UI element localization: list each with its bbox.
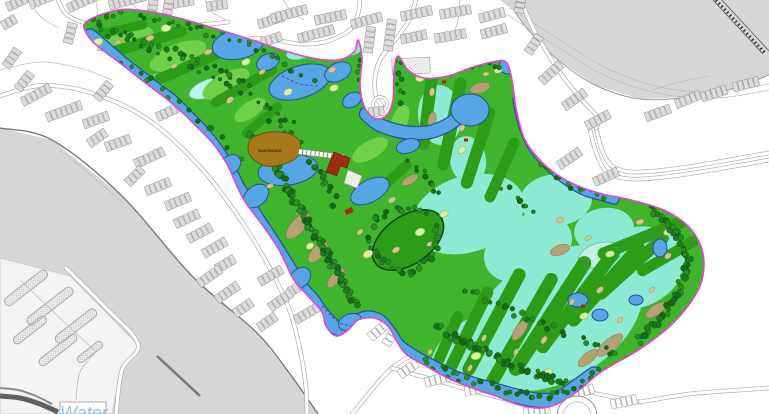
- tree: [157, 18, 161, 22]
- tree: [647, 151, 652, 156]
- tree: [189, 27, 193, 31]
- tree: [590, 370, 595, 375]
- tree: [147, 48, 152, 53]
- tree: [203, 33, 208, 38]
- tree: [323, 180, 328, 185]
- housing-unit: [366, 26, 376, 32]
- tree: [582, 335, 586, 339]
- tree: [164, 47, 168, 51]
- maintenance-shed: [328, 153, 332, 159]
- tree: [542, 157, 547, 162]
- tree: [204, 66, 209, 71]
- housing-row: [186, 223, 214, 244]
- tree: [658, 158, 663, 163]
- tree: [415, 169, 419, 173]
- housing-unit: [444, 8, 450, 18]
- tree: [496, 357, 502, 363]
- tree: [682, 252, 687, 257]
- tree: [436, 191, 440, 195]
- tree: [596, 367, 600, 371]
- tree: [106, 34, 111, 39]
- tree: [490, 382, 494, 386]
- housing-unit: [365, 31, 375, 37]
- tree: [443, 64, 448, 69]
- housing-row: [196, 265, 223, 288]
- tree: [537, 393, 543, 399]
- tree: [652, 321, 656, 325]
- housing-row: [206, 0, 228, 11]
- housing-unit: [148, 0, 158, 5]
- housing-row: [201, 237, 228, 258]
- tree: [402, 91, 406, 95]
- lake: [629, 295, 643, 305]
- tree: [96, 20, 101, 25]
- tree: [306, 159, 312, 165]
- housing-unit: [363, 47, 373, 53]
- tree: [530, 317, 535, 322]
- tree: [443, 366, 448, 371]
- tree: [330, 203, 336, 209]
- tree: [571, 386, 576, 391]
- tree: [464, 375, 469, 380]
- tree: [526, 114, 530, 118]
- tree: [651, 154, 656, 159]
- tree: [228, 38, 231, 41]
- tree: [417, 208, 422, 213]
- corridor-top-right: [500, 0, 769, 99]
- housing-row: [104, 134, 132, 152]
- housing-unit: [373, 107, 379, 117]
- tree: [386, 259, 391, 264]
- tree: [547, 396, 552, 401]
- housing-unit: [439, 9, 445, 19]
- tree: [279, 124, 283, 128]
- tree: [551, 373, 556, 378]
- housing-row: [314, 9, 347, 25]
- tree: [674, 230, 678, 234]
- tree: [412, 205, 417, 210]
- tree: [635, 334, 640, 339]
- tree: [644, 325, 650, 331]
- tree: [329, 251, 334, 256]
- tree: [550, 391, 555, 396]
- maintenance-shed: [323, 152, 327, 158]
- housing-unit: [164, 0, 174, 4]
- housing-unit: [385, 35, 395, 41]
- tree: [160, 87, 164, 91]
- tree: [324, 258, 329, 263]
- tree: [675, 293, 681, 299]
- housing-row: [556, 147, 583, 170]
- tree: [561, 381, 565, 385]
- tree: [656, 315, 663, 322]
- tree: [171, 20, 175, 24]
- tree: [656, 322, 661, 327]
- maintenance-label: MAINTENANCE: [258, 149, 282, 153]
- tree: [334, 193, 340, 199]
- housing-unit: [379, 106, 385, 116]
- maintenance-shed: [307, 150, 311, 156]
- tree: [682, 275, 689, 282]
- tree: [297, 208, 303, 214]
- tree: [238, 39, 242, 43]
- tree: [338, 276, 345, 283]
- housing-unit: [434, 33, 440, 43]
- tree: [493, 65, 498, 70]
- tree: [659, 160, 665, 166]
- tree: [372, 215, 378, 221]
- housing-row: [383, 19, 397, 52]
- tree: [499, 187, 503, 191]
- tree: [225, 145, 230, 150]
- tree: [673, 235, 679, 241]
- tree: [688, 256, 694, 262]
- housing-unit: [461, 29, 467, 39]
- tree: [429, 256, 435, 262]
- tree: [561, 389, 565, 393]
- housing-row: [363, 26, 376, 53]
- tree: [568, 186, 573, 191]
- housing-row: [28, 0, 56, 9]
- housing-unit: [365, 37, 375, 43]
- tree: [414, 165, 418, 169]
- tree: [524, 317, 530, 323]
- tree: [634, 354, 639, 359]
- tree: [283, 176, 289, 182]
- tree: [332, 259, 337, 264]
- housing-unit: [148, 5, 158, 11]
- housing-row: [232, 298, 254, 318]
- tree: [551, 323, 556, 328]
- tree: [226, 72, 232, 78]
- tree: [421, 259, 426, 264]
- maintenance-shed: [319, 152, 323, 158]
- housing-row: [270, 4, 308, 23]
- housing-row: [478, 7, 506, 23]
- tree: [142, 16, 146, 20]
- tree: [130, 65, 134, 69]
- tree: [511, 313, 516, 318]
- tree: [416, 266, 422, 272]
- tree: [430, 183, 435, 188]
- tree: [396, 47, 400, 51]
- tree: [424, 360, 429, 365]
- housing-row: [480, 23, 508, 39]
- tree: [177, 100, 181, 104]
- tree: [544, 326, 549, 331]
- tree: [357, 64, 361, 68]
- tree: [283, 118, 288, 123]
- housing-unit: [523, 407, 529, 414]
- maintenance-shed: [303, 150, 307, 156]
- tree: [327, 189, 331, 193]
- tree: [548, 378, 554, 384]
- housing-row: [434, 29, 467, 44]
- tree: [123, 31, 127, 35]
- tree: [496, 301, 500, 305]
- tree: [523, 107, 529, 113]
- tree: [438, 66, 442, 70]
- tree: [524, 369, 530, 375]
- tree: [524, 103, 530, 109]
- housing-unit: [450, 30, 456, 40]
- tree: [462, 338, 467, 343]
- tree: [320, 174, 326, 180]
- tree: [524, 204, 528, 208]
- tree: [313, 165, 318, 170]
- comfort-station: [464, 139, 468, 142]
- tree: [190, 54, 194, 58]
- tree: [555, 390, 559, 394]
- housing-row: [82, 111, 110, 129]
- tree: [480, 347, 485, 352]
- tree: [139, 71, 143, 75]
- tree: [528, 123, 532, 127]
- tree: [677, 179, 683, 185]
- tree: [197, 70, 201, 74]
- tree: [119, 33, 123, 37]
- housing-unit: [387, 19, 397, 25]
- tree: [395, 82, 399, 86]
- tree: [532, 136, 537, 141]
- housing-row: [144, 177, 172, 196]
- housing-row: [644, 104, 672, 122]
- tree: [561, 333, 566, 338]
- tree: [438, 323, 443, 328]
- tree: [270, 54, 274, 58]
- road-surface: [640, 388, 769, 402]
- tree: [531, 210, 535, 214]
- tree: [249, 92, 253, 96]
- housing-row: [124, 165, 145, 186]
- tree: [114, 29, 118, 33]
- tree: [348, 298, 354, 304]
- tree: [275, 56, 279, 60]
- housing-row: [63, 22, 78, 45]
- tree: [399, 77, 404, 82]
- tree: [276, 112, 280, 116]
- tree: [608, 352, 613, 357]
- tree: [459, 62, 463, 66]
- tree: [373, 249, 379, 255]
- tree: [328, 184, 334, 190]
- tree: [371, 224, 377, 230]
- tree: [368, 246, 372, 250]
- tree: [406, 159, 410, 163]
- tree: [515, 93, 519, 97]
- tree: [382, 214, 387, 219]
- tree: [423, 169, 427, 173]
- housing-unit: [466, 5, 472, 15]
- tree: [224, 81, 229, 86]
- tree: [601, 196, 606, 201]
- tree: [364, 87, 368, 91]
- lake: [592, 309, 608, 321]
- tree: [141, 39, 147, 45]
- housing-row: [214, 281, 241, 304]
- tree: [381, 257, 387, 263]
- tree: [321, 239, 326, 244]
- maintenance-shed: [298, 149, 302, 155]
- tree: [268, 106, 272, 110]
- maintenance-shed: [315, 151, 319, 157]
- housing-unit: [445, 31, 451, 41]
- tree: [156, 52, 159, 55]
- tree: [390, 266, 394, 270]
- tree: [306, 217, 312, 223]
- housing-unit: [450, 7, 456, 17]
- lake: [653, 239, 667, 257]
- tree: [396, 267, 402, 273]
- housing-unit: [455, 6, 461, 16]
- tree: [518, 389, 523, 394]
- tree: [195, 25, 199, 29]
- tree: [195, 119, 200, 124]
- tree: [299, 73, 303, 77]
- tree: [496, 386, 501, 391]
- lake: [451, 94, 489, 126]
- tree: [398, 101, 403, 106]
- tree: [482, 298, 488, 304]
- tree: [195, 58, 199, 62]
- tree: [290, 193, 295, 198]
- tree: [218, 77, 222, 81]
- tree: [343, 288, 349, 294]
- tree: [507, 185, 512, 190]
- tree: [584, 340, 589, 345]
- tree: [125, 37, 130, 42]
- tree: [195, 62, 199, 66]
- tree: [431, 189, 436, 194]
- tree: [213, 64, 217, 68]
- tree: [367, 236, 371, 240]
- tree: [424, 211, 429, 216]
- tree: [240, 157, 244, 161]
- tree: [487, 350, 493, 356]
- tree: [515, 87, 521, 93]
- tree: [508, 390, 512, 394]
- housing-unit: [383, 45, 393, 51]
- housing-unit: [364, 42, 374, 48]
- housing-unit: [183, 0, 189, 7]
- tree: [443, 332, 449, 338]
- housing-unit: [222, 0, 228, 9]
- tree: [364, 90, 369, 95]
- tree: [434, 234, 440, 240]
- tree: [536, 369, 540, 373]
- housing-row: [439, 5, 472, 20]
- tree: [383, 209, 388, 214]
- tree: [211, 35, 215, 39]
- tree: [524, 390, 530, 396]
- housing-row: [293, 303, 320, 324]
- tree: [220, 135, 225, 140]
- housing-unit: [178, 0, 184, 7]
- tree: [531, 395, 535, 399]
- tree: [364, 97, 369, 102]
- tree: [176, 24, 180, 28]
- tree: [111, 14, 115, 18]
- tree: [104, 15, 109, 20]
- tree: [417, 261, 421, 265]
- master-plan-map: MAINTENANCE Water: [0, 0, 769, 414]
- tree: [139, 44, 143, 48]
- site-plan-canvas: MAINTENANCE Water: [0, 0, 769, 414]
- tree: [282, 62, 287, 67]
- housing-unit: [385, 29, 395, 35]
- tree: [156, 44, 161, 49]
- tree: [407, 207, 411, 211]
- tree: [355, 69, 360, 74]
- tree: [399, 209, 404, 214]
- housing-row: [0, 14, 18, 30]
- housing-unit: [384, 40, 394, 46]
- housing-row: [256, 312, 278, 332]
- tree: [471, 382, 476, 387]
- tree: [292, 120, 296, 124]
- minor-road: [0, 62, 112, 80]
- tree: [99, 27, 103, 31]
- tree: [638, 341, 643, 346]
- tree: [463, 289, 468, 294]
- tree: [672, 178, 677, 183]
- housing-row: [164, 192, 192, 211]
- housing-row: [108, 0, 146, 10]
- tree: [262, 48, 266, 52]
- tree: [642, 332, 649, 339]
- tree: [488, 300, 492, 304]
- tree: [355, 302, 361, 308]
- tree: [148, 75, 153, 80]
- tree: [523, 117, 527, 121]
- tree: [423, 174, 429, 180]
- tree: [497, 65, 502, 70]
- comfort-station: [442, 81, 446, 84]
- tree: [278, 118, 283, 123]
- housing-unit: [460, 5, 466, 15]
- tree: [517, 198, 523, 204]
- tree: [167, 22, 171, 26]
- tree: [665, 312, 670, 317]
- tree: [468, 60, 472, 64]
- tree: [241, 78, 246, 83]
- tree: [168, 57, 172, 61]
- tree: [139, 13, 143, 17]
- tree: [435, 246, 441, 252]
- housing-unit: [217, 0, 223, 10]
- tree: [519, 98, 523, 102]
- housing-row: [173, 209, 201, 229]
- tree: [266, 118, 271, 123]
- tree: [441, 64, 445, 68]
- tree: [265, 103, 269, 107]
- tree: [596, 343, 600, 347]
- tree: [132, 37, 136, 41]
- tree: [604, 346, 608, 350]
- housing-unit: [439, 32, 445, 42]
- tree: [257, 101, 260, 104]
- bottom-cutoff-label: Water: [60, 403, 109, 414]
- housing-row: [2, 47, 22, 69]
- tree: [180, 56, 185, 61]
- tree: [254, 48, 259, 53]
- housing-unit: [206, 1, 212, 11]
- tree: [186, 22, 191, 27]
- tree: [207, 125, 213, 131]
- tree: [396, 72, 401, 77]
- tree: [218, 68, 223, 73]
- tree: [152, 18, 156, 22]
